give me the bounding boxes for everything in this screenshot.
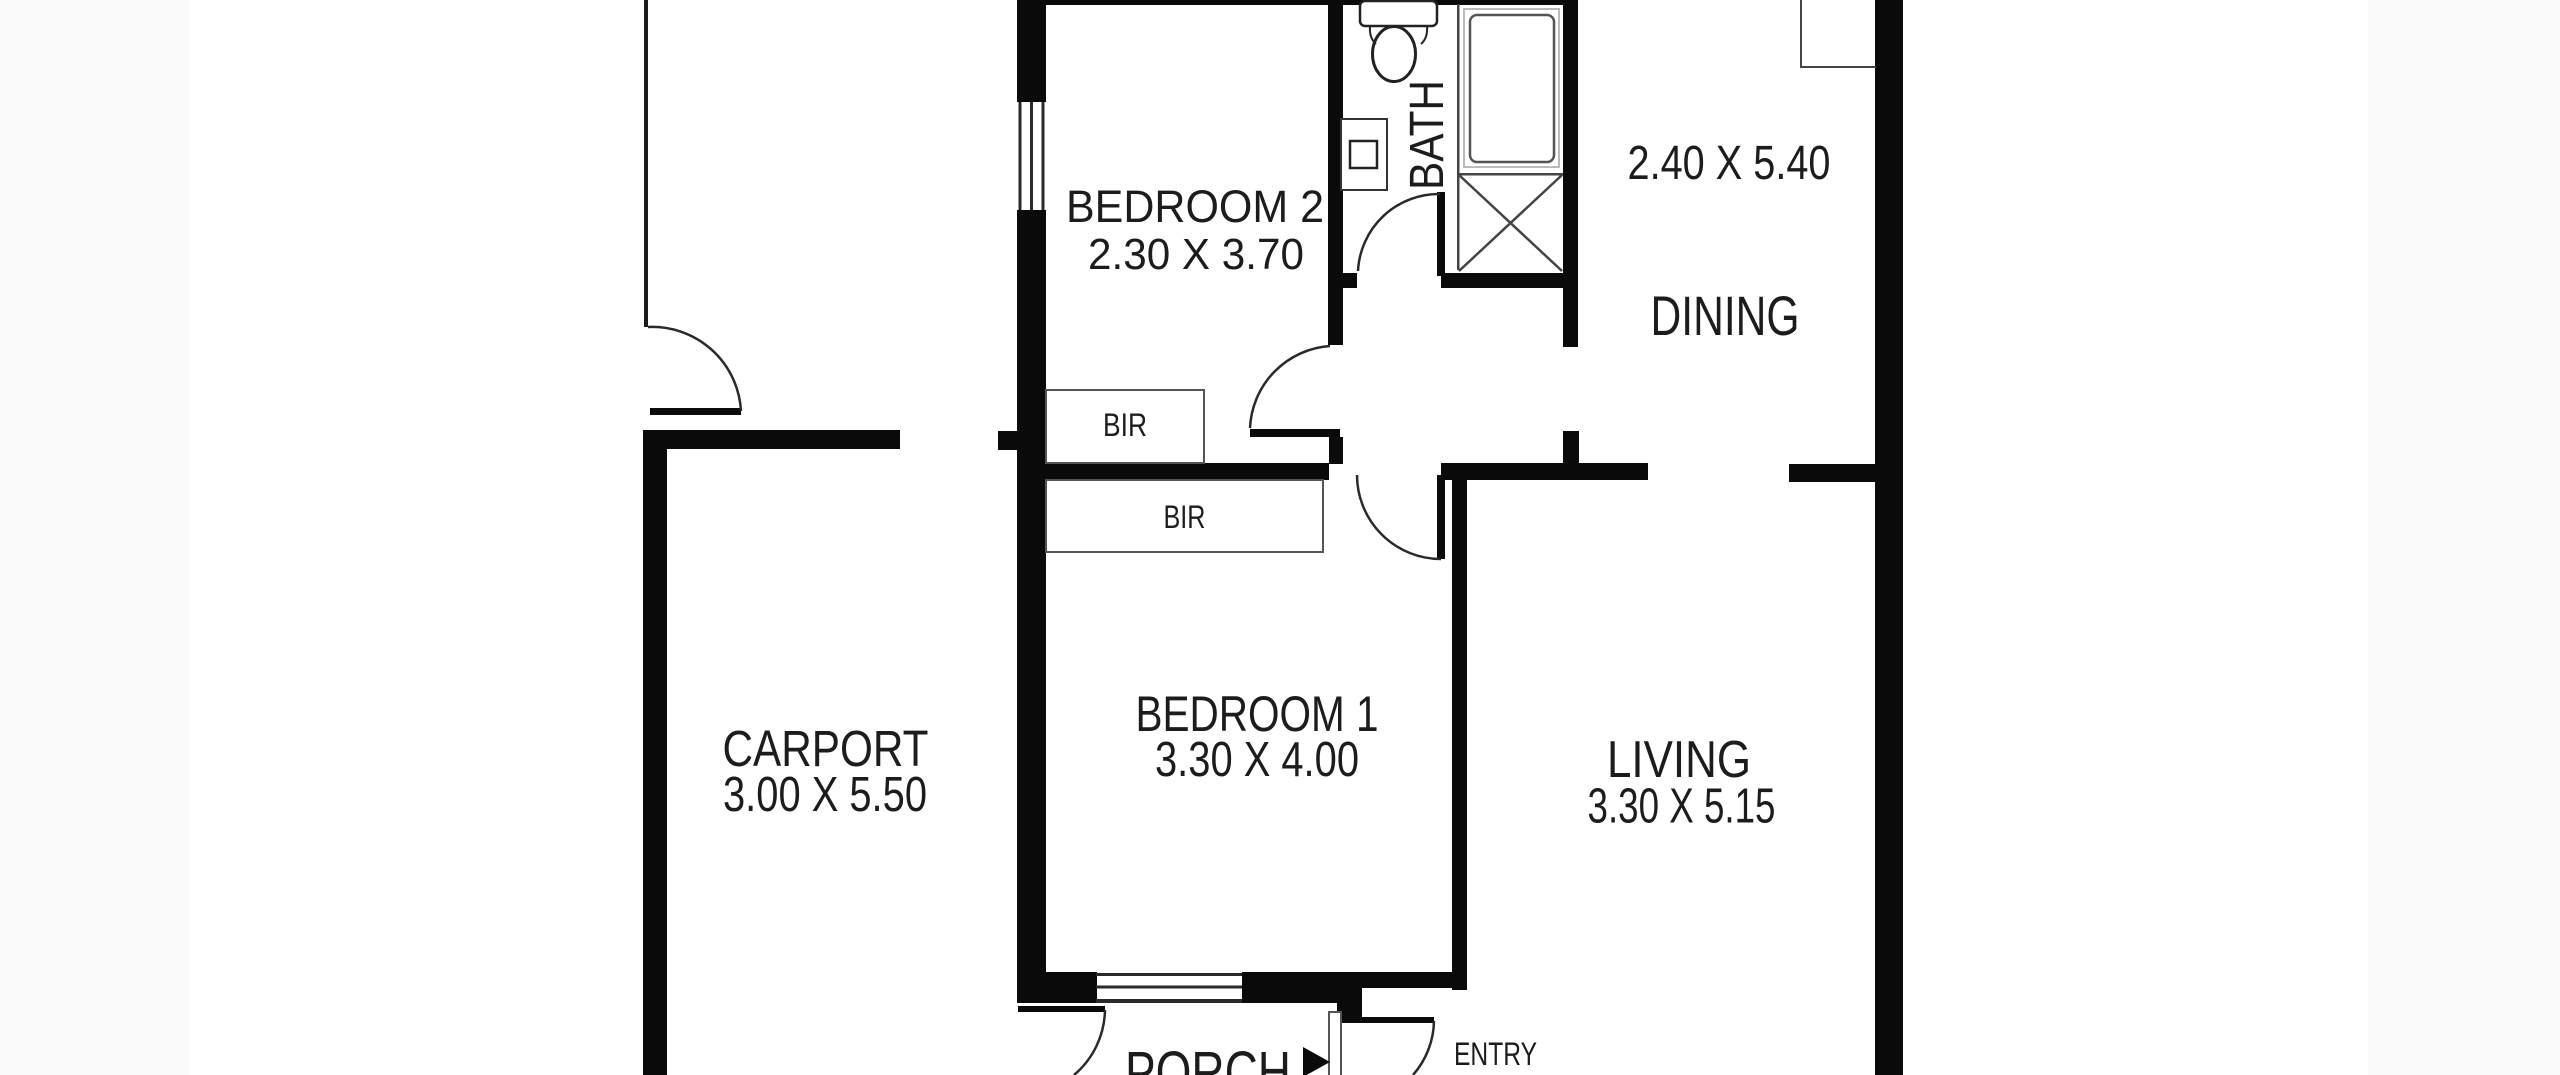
svg-text:3.00 X 5.50: 3.00 X 5.50 [723,768,927,822]
svg-text:BIR: BIR [1164,499,1206,535]
svg-text:PORCH: PORCH [1125,1040,1291,1075]
svg-text:BATH: BATH [1401,80,1454,190]
svg-text:DINING: DINING [1651,284,1800,347]
svg-text:BIR: BIR [1103,407,1147,443]
svg-text:3.30 X 5.15: 3.30 X 5.15 [1588,780,1776,834]
svg-text:2.40 X 5.40: 2.40 X 5.40 [1628,137,1831,190]
svg-text:ENTRY: ENTRY [1454,1036,1537,1072]
svg-text:3.30 X 4.00: 3.30 X 4.00 [1155,733,1359,787]
svg-text:2.30 X 3.70: 2.30 X 3.70 [1088,230,1304,279]
svg-text:BEDROOM 2: BEDROOM 2 [1066,181,1324,232]
